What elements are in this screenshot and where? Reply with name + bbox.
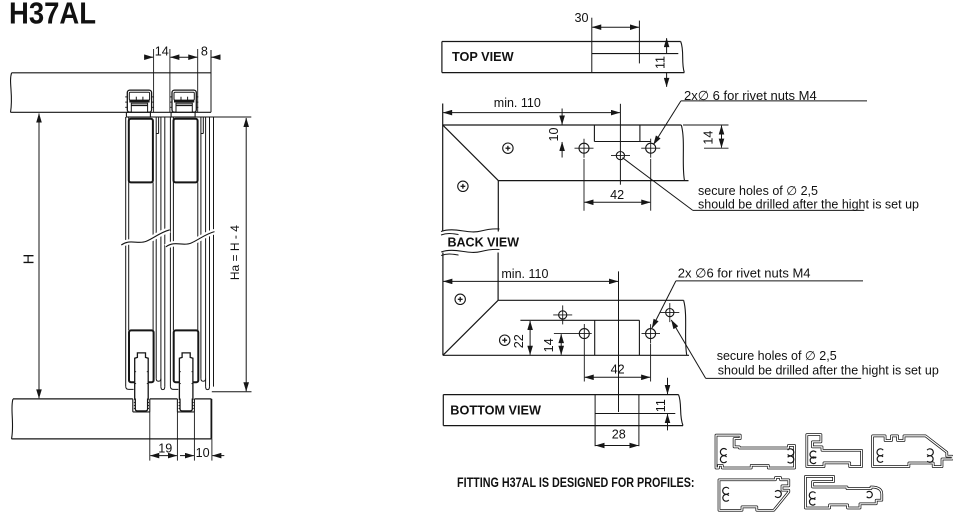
svg-text:10: 10	[547, 127, 561, 141]
svg-text:min. 110: min. 110	[501, 267, 548, 281]
svg-text:secure holes of ∅ 2,5: secure holes of ∅ 2,5	[698, 184, 818, 198]
svg-text:19: 19	[158, 441, 172, 455]
svg-text:42: 42	[610, 188, 624, 202]
svg-text:min. 110: min. 110	[494, 96, 541, 110]
svg-text:8: 8	[201, 45, 208, 59]
svg-text:should be drilled after the hi: should be drilled after the hight is set…	[718, 364, 939, 378]
svg-text:should be drilled after the hi: should be drilled after the hight is set…	[698, 197, 919, 211]
svg-text:secure holes of ∅ 2,5: secure holes of ∅ 2,5	[717, 349, 837, 363]
svg-text:14: 14	[702, 131, 716, 145]
svg-text:42: 42	[611, 362, 625, 376]
svg-text:H37AL: H37AL	[9, 0, 96, 31]
svg-text:2x ∅6 for rivet nuts M4: 2x ∅6 for rivet nuts M4	[678, 266, 811, 281]
svg-text:14: 14	[155, 45, 169, 59]
svg-text:14: 14	[542, 338, 556, 352]
svg-text:Ha = H - 4: Ha = H - 4	[228, 225, 242, 280]
svg-text:28: 28	[612, 428, 626, 442]
svg-text:TOP VIEW: TOP VIEW	[452, 50, 514, 64]
svg-text:FITTING H37AL IS DESIGNED FOR: FITTING H37AL IS DESIGNED FOR PROFILES:	[457, 475, 695, 490]
svg-text:22: 22	[512, 334, 526, 348]
svg-text:10: 10	[196, 446, 210, 460]
svg-text:BACK VIEW: BACK VIEW	[448, 236, 520, 250]
svg-text:11: 11	[654, 56, 668, 69]
svg-text:30: 30	[574, 11, 588, 25]
svg-text:11: 11	[654, 399, 668, 412]
svg-text:H: H	[22, 254, 38, 264]
svg-text:BOTTOM VIEW: BOTTOM VIEW	[450, 403, 541, 417]
